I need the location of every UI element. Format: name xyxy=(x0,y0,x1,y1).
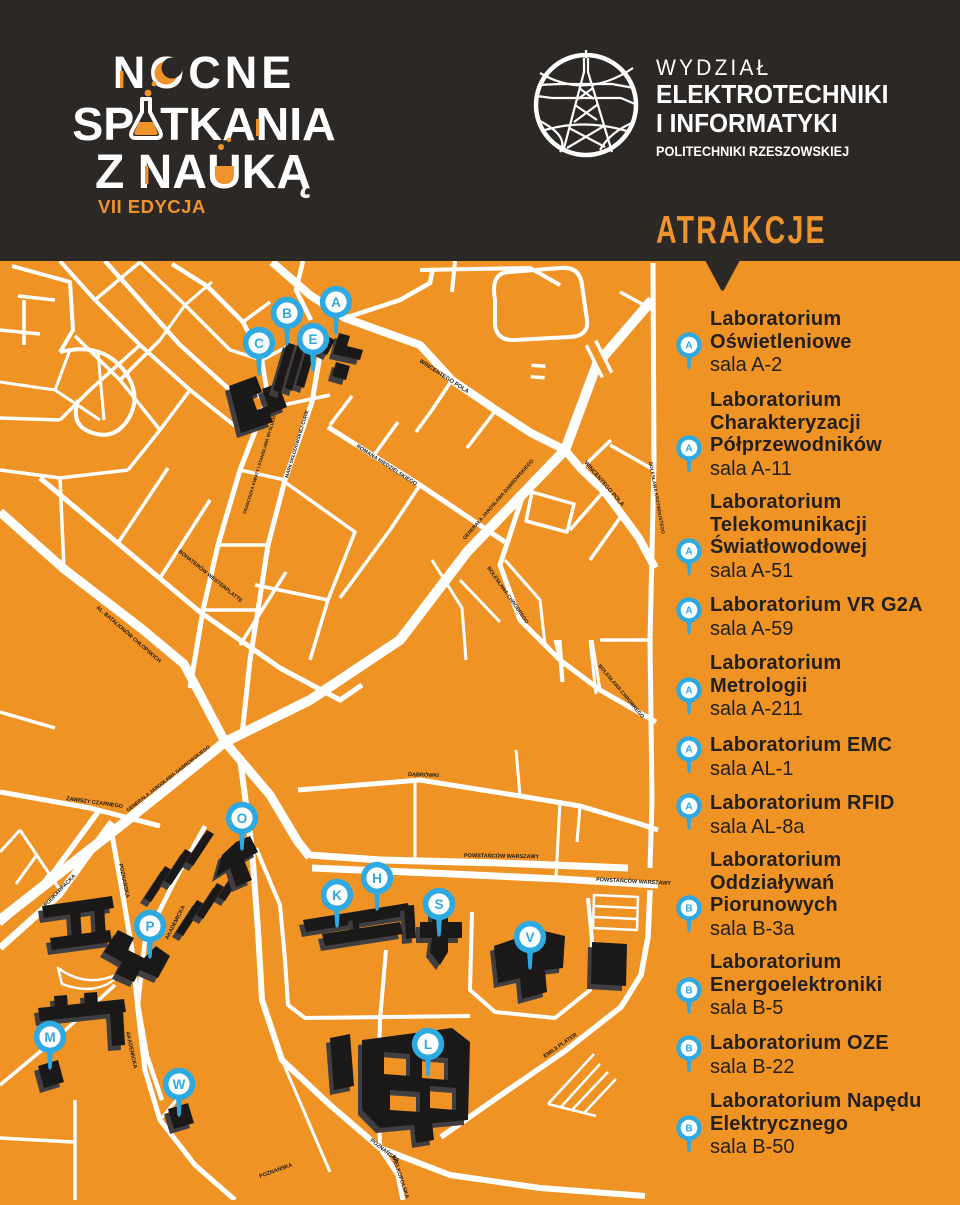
svg-text:A: A xyxy=(685,686,692,697)
svg-text:B: B xyxy=(685,986,692,997)
svg-text:B: B xyxy=(685,1044,692,1055)
svg-text:B: B xyxy=(685,1124,692,1135)
svg-text:A: A xyxy=(685,802,692,813)
svg-text:A: A xyxy=(685,606,692,617)
svg-text:A: A xyxy=(685,547,692,558)
svg-text:A: A xyxy=(685,444,692,455)
svg-text:A: A xyxy=(685,745,692,756)
svg-text:B: B xyxy=(685,904,692,915)
svg-text:A: A xyxy=(685,341,692,352)
